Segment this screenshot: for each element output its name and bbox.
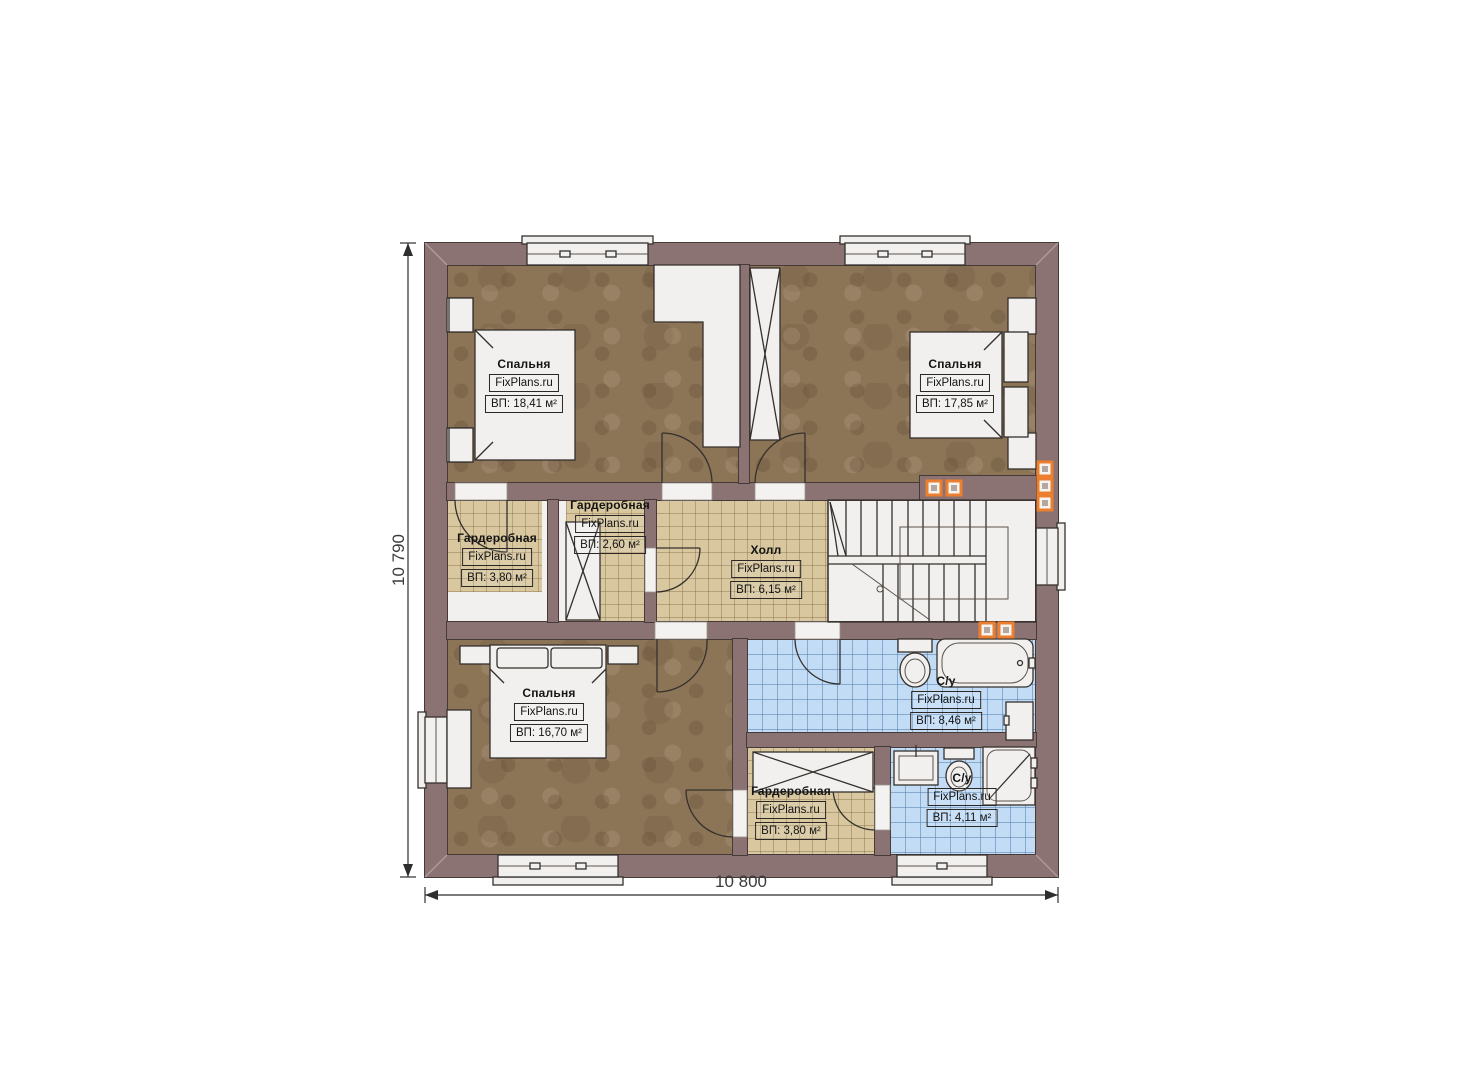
room-name: Гардеробная <box>457 531 537 545</box>
watermark: FixPlans.ru <box>489 374 559 392</box>
plan-drawing <box>0 0 1473 1080</box>
watermark: FixPlans.ru <box>514 703 584 721</box>
stairs <box>828 500 1036 622</box>
watermark: FixPlans.ru <box>756 801 826 819</box>
label-bedroom-bottom: Спальня FixPlans.ru ВП: 16,70 м² <box>510 686 588 742</box>
room-area: ВП: 16,70 м² <box>510 724 588 742</box>
room-name: Спальня <box>497 357 550 371</box>
room-area: ВП: 3,80 м² <box>755 822 827 840</box>
shaft-closet <box>750 268 780 440</box>
room-name: Холл <box>751 543 782 557</box>
room-name: Гардеробная <box>751 784 831 798</box>
label-wardrobe-left: Гардеробная FixPlans.ru ВП: 3,80 м² <box>457 531 537 587</box>
watermark: FixPlans.ru <box>575 515 645 533</box>
room-name: С/у <box>936 674 955 688</box>
watermark: FixPlans.ru <box>462 548 532 566</box>
watermark: FixPlans.ru <box>927 788 997 806</box>
room-name: Гардеробная <box>570 498 650 512</box>
room-area: ВП: 2,60 м² <box>574 536 646 554</box>
room-area: ВП: 17,85 м² <box>916 395 994 413</box>
floor-plan-page: { "watermark": "FixPlans.ru", "dimension… <box>0 0 1473 1080</box>
room-name: Спальня <box>522 686 575 700</box>
label-hall: Холл FixPlans.ru ВП: 6,15 м² <box>730 543 802 599</box>
label-bedroom-top-right: Спальня FixPlans.ru ВП: 17,85 м² <box>916 357 994 413</box>
label-bathroom-small: С/у FixPlans.ru ВП: 4,11 м² <box>927 771 998 827</box>
label-wardrobe-bottom: Гардеробная FixPlans.ru ВП: 3,80 м² <box>751 784 831 840</box>
room-area: ВП: 8,46 м² <box>910 712 982 730</box>
room-area: ВП: 18,41 м² <box>485 395 563 413</box>
washing-machine <box>1004 702 1033 740</box>
room-area: ВП: 4,11 м² <box>927 809 998 827</box>
label-bathroom-main: С/у FixPlans.ru ВП: 8,46 м² <box>910 674 982 730</box>
watermark: FixPlans.ru <box>731 560 801 578</box>
dimension-width: 10 800 <box>715 872 767 892</box>
room-name: Спальня <box>928 357 981 371</box>
watermark: FixPlans.ru <box>911 691 981 709</box>
room-area: ВП: 6,15 м² <box>730 581 802 599</box>
room-area: ВП: 3,80 м² <box>461 569 533 587</box>
room-name: С/у <box>952 771 971 785</box>
label-bedroom-top-left: Спальня FixPlans.ru ВП: 18,41 м² <box>485 357 563 413</box>
dimension-height: 10 790 <box>389 534 409 586</box>
label-wardrobe-middle: Гардеробная FixPlans.ru ВП: 2,60 м² <box>570 498 650 554</box>
vent-blocks <box>927 462 1052 637</box>
watermark: FixPlans.ru <box>920 374 990 392</box>
